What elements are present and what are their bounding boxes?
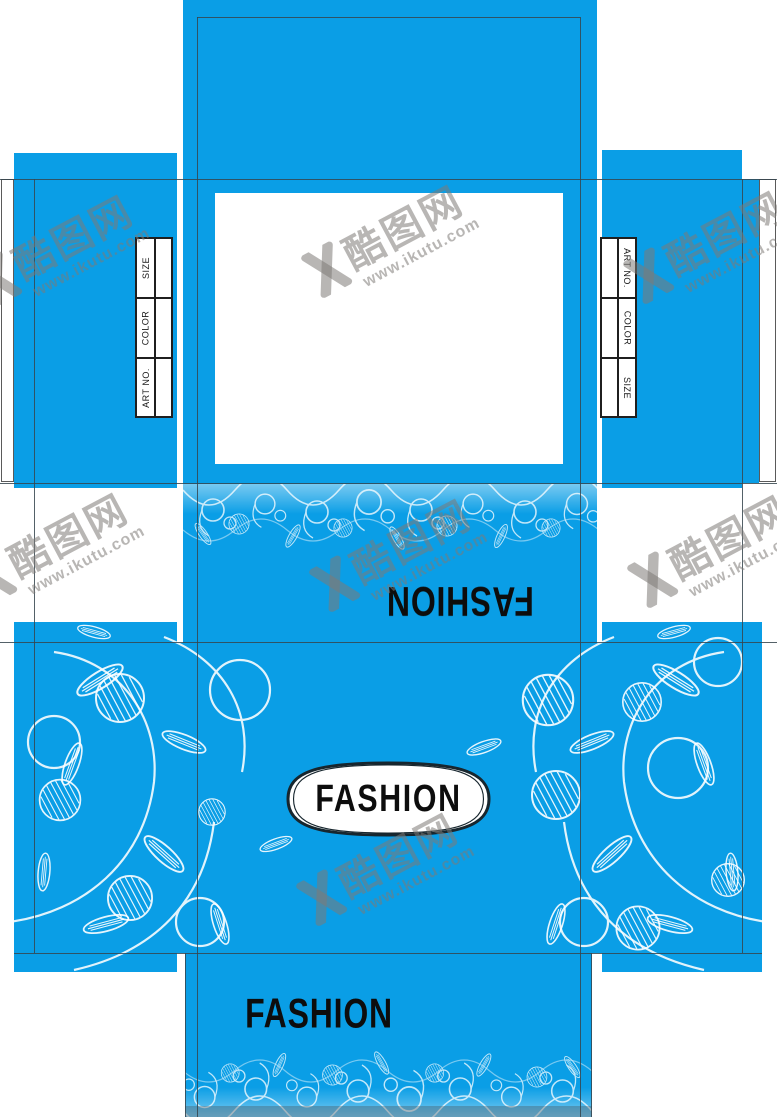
fold-line-h2 (0, 483, 777, 484)
fold-line-v-right (580, 17, 581, 1117)
spec-cell-artno: ART NO. (618, 238, 636, 298)
spec-cell-blank (155, 298, 172, 358)
spec-cell-color: COLOR (618, 298, 636, 358)
spec-table-left: SIZE COLOR ART NO. (135, 237, 173, 418)
box-dieline: SIZE COLOR ART NO. ART NO. COLOR SIZE FA… (0, 0, 777, 1117)
fold-line-v-left (197, 17, 198, 1117)
watermark-brand: 酷图网 (663, 490, 777, 588)
spec-cell-blank (155, 358, 172, 417)
spec-table-right: ART NO. COLOR SIZE (600, 237, 637, 418)
right-glue-flap (759, 179, 776, 482)
fold-line-v-wing-right (742, 179, 743, 953)
photo-window (215, 193, 563, 464)
left-glue-flap (1, 179, 14, 482)
bottom-flap-brand-text: FASHION (246, 989, 392, 1039)
floral-border-back-panel (183, 484, 597, 562)
right-glue-strip-blue (742, 179, 759, 483)
spec-cell-size: SIZE (136, 238, 155, 298)
back-panel-brand-text: FASHION (380, 577, 540, 625)
fashion-badge: FASHION (275, 757, 502, 841)
top-flap (183, 0, 597, 179)
spec-label: ART NO. (622, 248, 632, 288)
ikutu-logo-icon (0, 546, 23, 610)
spec-label: COLOR (622, 311, 632, 346)
spec-cell-artno: ART NO. (136, 358, 155, 417)
fold-line-h3 (0, 642, 777, 643)
spec-cell-blank (601, 298, 618, 358)
fold-line-v-wing-left (34, 179, 35, 953)
spec-label: SIZE (622, 376, 632, 398)
watermark-url: www.ikutu.com (686, 515, 777, 601)
badge-label: FASHION (295, 756, 481, 842)
spec-label: SIZE (141, 257, 151, 279)
spec-cell-blank (155, 238, 172, 298)
spec-label: ART NO. (141, 368, 151, 408)
fold-line-h4 (14, 953, 762, 954)
cut-line-bottom-flap-left (185, 953, 186, 1117)
ikutu-logo-icon (621, 548, 684, 612)
spec-cell-color: COLOR (136, 298, 155, 358)
fold-line-top-flap (197, 17, 580, 18)
watermark-url: www.ikutu.com (25, 513, 166, 599)
watermark-brand: 酷图网 (2, 488, 136, 586)
spec-cell-size: SIZE (618, 358, 636, 417)
spec-cell-blank (601, 358, 618, 417)
cut-line-bottom-flap-right (591, 953, 592, 1117)
fold-line-h1 (0, 179, 777, 180)
spec-label: COLOR (141, 311, 151, 346)
spec-cell-blank (601, 238, 618, 298)
bottom-edge-shade (185, 1106, 592, 1117)
